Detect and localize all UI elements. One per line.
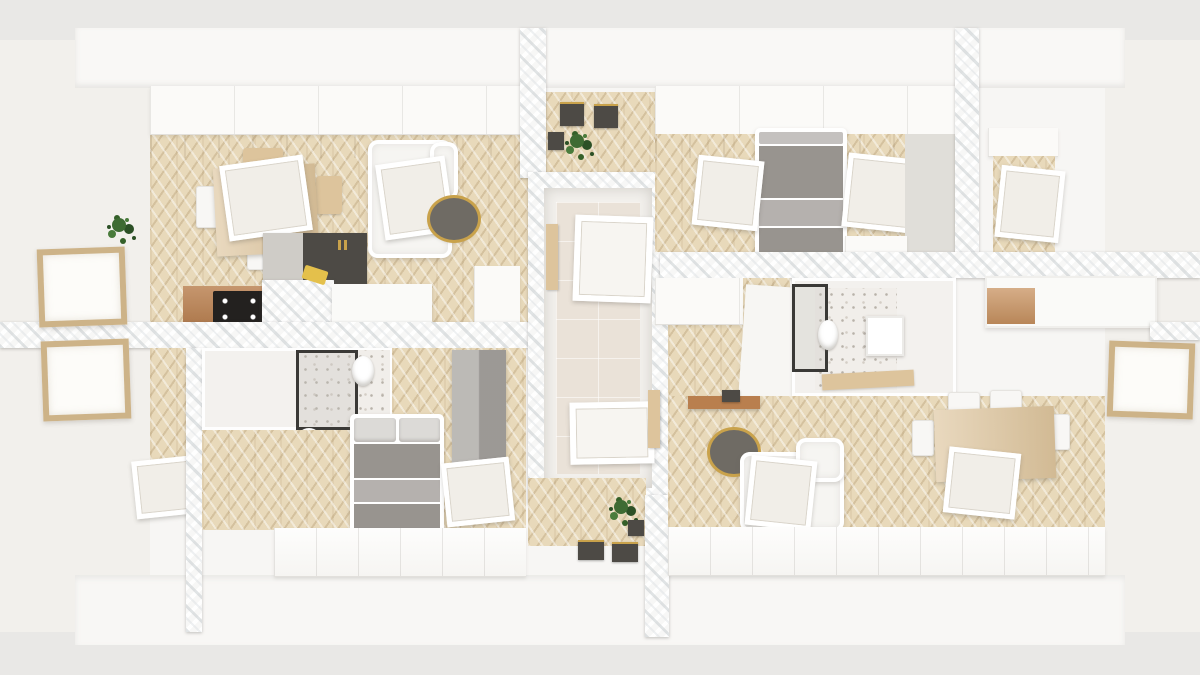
skylight-left-bedroom [441,457,515,528]
left-bed-pillow-2 [399,418,441,442]
right-kitchen-wood-cabinet [987,288,1035,324]
landing-bench-2 [612,542,638,562]
left-coffee-table [430,198,478,240]
corridor-shelf [548,132,564,150]
right-gable-window [1107,341,1196,420]
right-bedside-wall [905,134,955,252]
right-shelf-object [722,390,740,402]
left-potted-plant [112,218,126,232]
right-apartment-entry-door [569,401,654,464]
right-vanity [866,316,904,356]
right-wardrobe [655,278,743,325]
right-bed-fold [759,200,843,226]
dining-chair-wood-right [316,176,342,214]
left-toilet [352,356,374,386]
coat-box-1 [560,102,584,126]
right-edge-wall-stub [1150,322,1200,340]
left-bed-duvet [354,444,440,478]
right-toilet [818,320,838,350]
left-partition-wall-vertical [186,348,202,632]
left-knee-wall-cabinets-bottom [274,528,526,577]
stairwell-open-door-right [648,390,660,448]
left-apartment-entry-door [573,215,654,304]
bottom-roof-plane [75,575,1125,645]
coat-box-2 [594,104,618,128]
landing-hanging-plant [614,500,628,514]
left-knee-wall-cabinets-top [150,86,520,135]
left-gable-window-upper [37,246,128,327]
left-shower [296,350,358,430]
right-dining-chair-left [912,420,934,456]
skylight-right-dining [943,446,1022,519]
left-kitchen-gold-handles [338,240,341,250]
skylight-study-nook [994,165,1065,243]
right-knee-wall-cabinets-bottom [668,527,1105,576]
floor-plan-render [0,0,1200,675]
right-section-wall [660,252,1200,278]
left-bed [350,414,444,538]
corridor-plant [570,134,584,148]
center-wall-top [520,28,546,178]
center-wall-bottom [645,495,669,637]
right-bed [755,128,847,260]
right-partition-panel [738,284,800,403]
skylight-right-bedroom-1 [692,155,765,232]
right-bed-duvet [759,146,843,198]
right-bed-headboard [759,132,843,144]
stairwell-open-door-left [546,224,558,290]
left-wall-dresser [474,266,520,325]
left-wardrobe [452,350,506,466]
landing-bench-1 [578,540,604,560]
skylight-left-dining [219,155,313,242]
skylight-right-sofa [745,455,818,532]
left-bed-fold [354,480,440,502]
right-partition-wall-vertical [955,28,979,260]
left-bed-pillow-1 [354,418,396,442]
landing-planter [628,520,644,536]
study-nook-cabinet [988,128,1058,157]
left-gable-window-lower [41,338,132,421]
